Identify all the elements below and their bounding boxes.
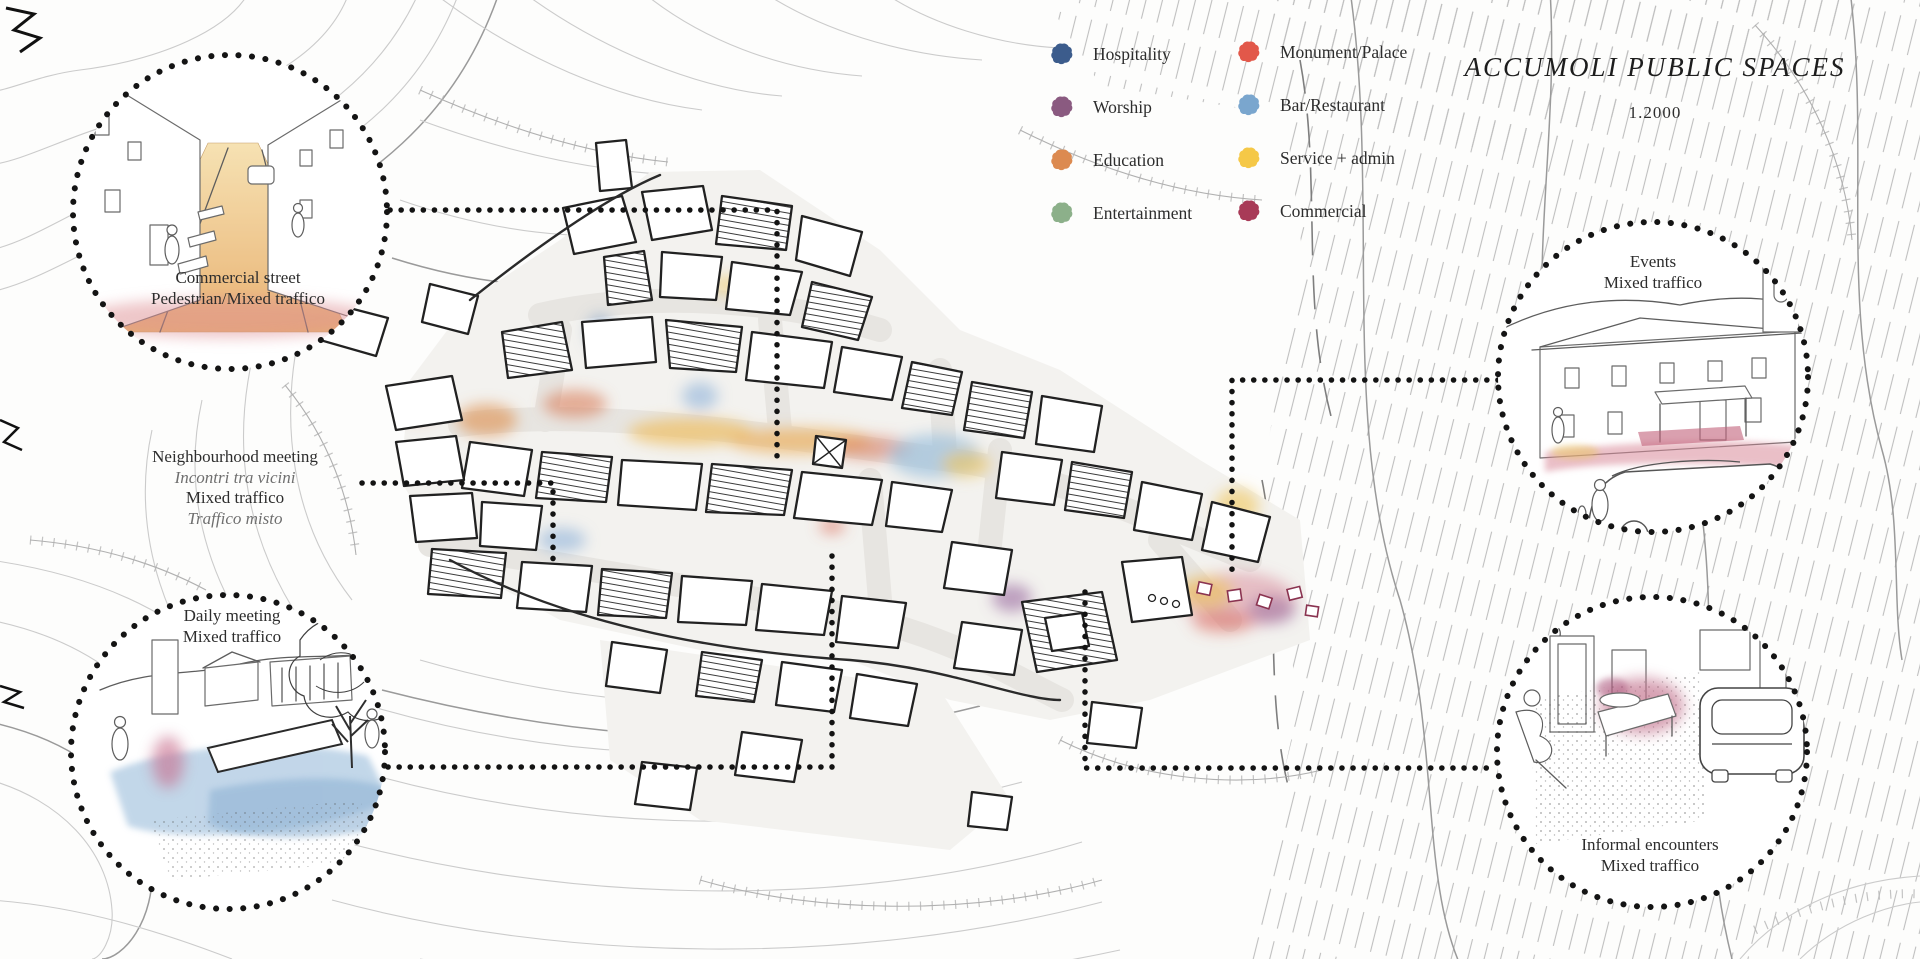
scale-label: 1.2000 bbox=[1629, 103, 1682, 123]
legend-label: Hospitality bbox=[1093, 44, 1171, 65]
legend-label: Education bbox=[1093, 150, 1164, 171]
legend-item: Commercial bbox=[1237, 199, 1407, 223]
vignette-commercial-street bbox=[70, 55, 390, 369]
callout-informal-encounters: Informal encounters Mixed traffico bbox=[1581, 835, 1718, 876]
legend-label: Service + admin bbox=[1280, 148, 1395, 169]
legend-label: Worship bbox=[1093, 97, 1152, 118]
legend-label: Bar/Restaurant bbox=[1280, 95, 1385, 116]
callout-events: Events Mixed traffico bbox=[1604, 252, 1702, 293]
category-splat-icon bbox=[1237, 93, 1261, 117]
category-splat-icon bbox=[1050, 95, 1074, 119]
callout-daily-meeting: Daily meeting Mixed traffico bbox=[183, 606, 281, 647]
page-title: ACCUMOLI PUBLIC SPACES bbox=[1464, 52, 1845, 83]
edge-mark-icon bbox=[0, 420, 22, 450]
legend-label: Commercial bbox=[1280, 201, 1367, 222]
category-splat-icon bbox=[1237, 40, 1261, 64]
category-splat-icon bbox=[1050, 148, 1074, 172]
category-splat-icon bbox=[1237, 199, 1261, 223]
legend-item: Hospitality bbox=[1050, 42, 1192, 66]
legend-item: Entertainment bbox=[1050, 201, 1192, 225]
legend-item: Bar/Restaurant bbox=[1237, 93, 1407, 117]
legend-label: Monument/Palace bbox=[1280, 42, 1407, 63]
callout-neighbourhood-meeting: Neighbourhood meeting Incontri tra vicin… bbox=[152, 447, 318, 530]
legend-label: Entertainment bbox=[1093, 203, 1192, 224]
corner-mark-icon bbox=[6, 8, 40, 52]
legend-item: Worship bbox=[1050, 95, 1192, 119]
town-plan bbox=[268, 140, 1319, 850]
accumoli-public-spaces-board: { "title": { "text": "ACCUMOLI PUBLIC SP… bbox=[0, 0, 1920, 959]
legend-column-left: Hospitality Worship Education Entertainm… bbox=[1050, 42, 1192, 225]
callout-commercial-street: Commercial street Pedestrian/Mixed traff… bbox=[151, 268, 325, 309]
legend-item: Education bbox=[1050, 148, 1192, 172]
category-splat-icon bbox=[1050, 201, 1074, 225]
legend-item: Service + admin bbox=[1237, 146, 1407, 170]
category-splat-icon bbox=[1237, 146, 1261, 170]
legend-item: Monument/Palace bbox=[1237, 40, 1407, 64]
legend-column-right: Monument/Palace Bar/Restaurant Service +… bbox=[1237, 40, 1407, 223]
category-splat-icon bbox=[1050, 42, 1074, 66]
edge-mark-icon bbox=[0, 686, 24, 708]
